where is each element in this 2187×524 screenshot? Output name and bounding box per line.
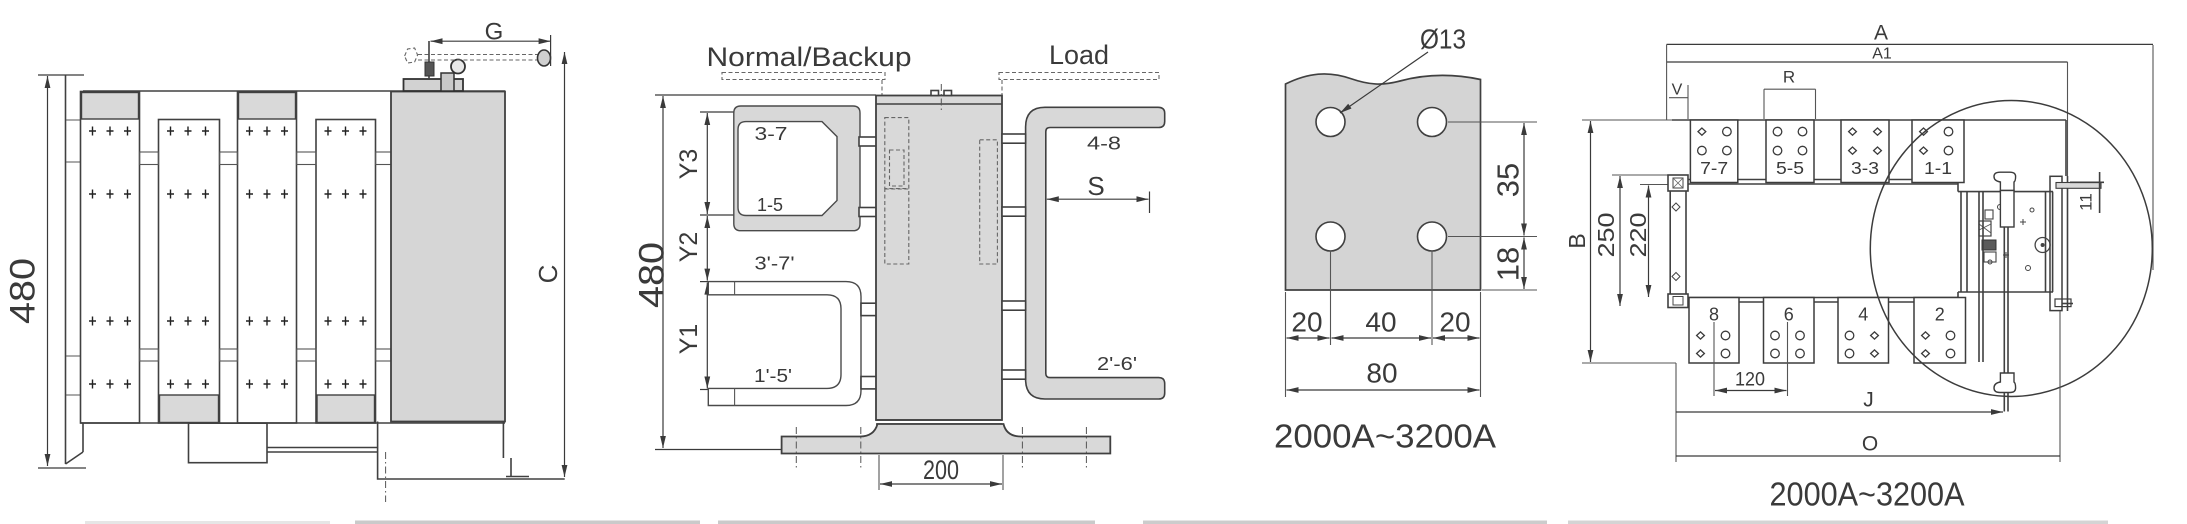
svg-text:B: B	[1564, 233, 1590, 248]
svg-text:2000A~3200A: 2000A~3200A	[1770, 476, 1965, 513]
svg-text:250: 250	[1593, 213, 1619, 258]
svg-text:5-5: 5-5	[1776, 158, 1804, 178]
svg-text:120: 120	[1735, 370, 1765, 391]
svg-text:C: C	[533, 265, 563, 284]
svg-text:Y3: Y3	[675, 149, 703, 180]
svg-text:1'-5': 1'-5'	[754, 366, 792, 386]
svg-text:2: 2	[1935, 305, 1945, 325]
svg-text:4: 4	[1858, 305, 1868, 325]
svg-text:18: 18	[1491, 247, 1526, 281]
svg-text:80: 80	[1366, 358, 1397, 389]
svg-text:40: 40	[1365, 307, 1396, 338]
svg-text:A: A	[1874, 22, 1888, 45]
svg-text:G: G	[485, 19, 504, 46]
svg-text:1-5: 1-5	[757, 195, 783, 215]
svg-text:20: 20	[1439, 307, 1470, 338]
svg-text:Load: Load	[1049, 40, 1109, 70]
svg-text:Y2: Y2	[675, 232, 703, 263]
svg-text:480: 480	[633, 242, 672, 308]
svg-text:3'-7': 3'-7'	[755, 254, 795, 274]
svg-text:20: 20	[1291, 307, 1322, 338]
svg-text:35: 35	[1491, 163, 1526, 197]
svg-text:Ø13: Ø13	[1420, 24, 1466, 55]
svg-text:7-7: 7-7	[1700, 158, 1728, 178]
svg-text:11: 11	[2077, 193, 2096, 211]
svg-text:2000A~3200A: 2000A~3200A	[1274, 418, 1496, 455]
svg-text:8: 8	[1709, 305, 1719, 325]
svg-text:O: O	[1862, 433, 1878, 456]
svg-text:V: V	[1672, 82, 1683, 99]
svg-text:S: S	[1087, 171, 1104, 201]
svg-text:2'-6': 2'-6'	[1097, 354, 1137, 374]
svg-text:R: R	[1783, 68, 1795, 87]
svg-text:220: 220	[1625, 213, 1651, 258]
svg-text:3-7: 3-7	[755, 124, 788, 144]
svg-text:200: 200	[923, 455, 959, 485]
svg-text:4-8: 4-8	[1087, 134, 1121, 154]
svg-text:480: 480	[4, 258, 43, 324]
svg-text:Normal/Backup: Normal/Backup	[707, 42, 912, 72]
svg-text:A1: A1	[1872, 46, 1892, 63]
svg-text:1-1: 1-1	[1924, 158, 1952, 178]
svg-text:3-3: 3-3	[1851, 158, 1879, 178]
svg-text:6: 6	[1784, 305, 1794, 325]
svg-text:Y1: Y1	[675, 324, 703, 355]
svg-text:J: J	[1863, 389, 1874, 412]
